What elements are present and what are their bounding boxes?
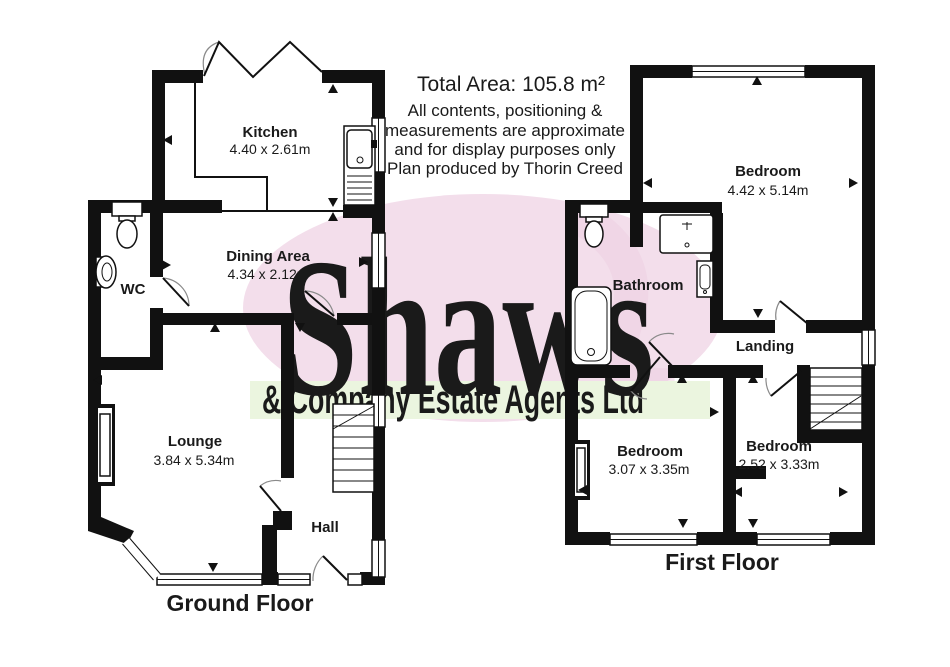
hall-side-window [372,540,385,577]
dining-dims: 4.34 x 2.12m [228,266,309,282]
direction-arrow [678,519,688,528]
disclaimer-line-4: Plan produced by Thorin Creed [387,159,623,178]
direction-arrow [643,178,652,188]
disclaimer-line-1: All contents, positioning & [408,101,603,120]
lounge-side-window-box [95,404,115,486]
bedroom1-door [776,301,808,324]
ground-floor-title: Ground Floor [167,590,314,616]
direction-arrow [710,407,719,417]
kitchen-sink-fixture [344,126,377,205]
lounge-front-window-2 [278,574,310,585]
bedroom3-door [766,371,801,396]
lounge-dims: 3.84 x 5.34m [154,452,235,468]
wc-label: WC [121,281,146,298]
first-floor-stairs [810,368,862,430]
bedroom3-dims: 2.52 x 3.33m [739,456,820,472]
disclaimer-line-2: measurements are approximate [385,121,625,140]
front-door-sidelight [348,574,362,585]
bay-corner-window [123,538,161,580]
direction-arrow [328,212,338,221]
dining-label: Dining Area [226,248,310,265]
french-doors [203,42,322,77]
direction-arrow [162,260,171,270]
direction-arrow [849,178,858,188]
bathroom-basin-fixture [697,261,713,297]
landing-label: Landing [736,338,794,355]
direction-arrow [328,84,338,93]
direction-arrow [208,563,218,572]
ground-floor-stairs [333,404,374,492]
direction-arrow [753,309,763,318]
bedroom2-front-window [610,534,697,545]
wc-toilet-fixture [112,202,142,248]
direction-arrow [328,198,338,207]
dining-window [372,233,385,288]
total-area-text: Total Area: 105.8 m² [417,73,605,96]
direction-arrow [839,487,848,497]
floorplan-page: Shaws & Company Estate Agents Ltd Total … [0,0,950,667]
front-door [313,556,347,581]
kitchen-label: Kitchen [242,124,297,141]
bathroom-label: Bathroom [613,277,684,294]
direction-arrow [748,519,758,528]
bathtub-fixture [571,287,611,365]
watermark: Shaws & Company Estate Agents Ltd [243,194,723,437]
bedroom2-dims: 3.07 x 3.35m [609,461,690,477]
bedroom1-window [692,66,805,77]
shower-fixture [660,215,713,253]
kitchen-dims: 4.40 x 2.61m [230,141,311,157]
lounge-front-window [157,574,262,585]
bedroom1-dims: 4.42 x 5.14m [728,182,809,198]
first-floor-title: First Floor [665,549,779,575]
bedroom3-label: Bedroom [746,438,812,455]
bedroom2-label: Bedroom [617,443,683,460]
disclaimer-line-3: and for display purposes only [394,140,616,159]
wc-basin-fixture [96,256,116,288]
bedroom3-front-window [757,534,830,545]
header: Total Area: 105.8 m² All contents, posit… [385,73,625,178]
bedroom1-label: Bedroom [735,163,801,180]
hall-label: Hall [311,519,339,536]
wc-door [163,278,189,306]
landing-window [862,330,875,365]
watermark-subtitle: & Company Estate Agents Ltd [262,378,644,422]
lounge-hall-door [260,481,281,511]
lounge-label: Lounge [168,433,222,450]
